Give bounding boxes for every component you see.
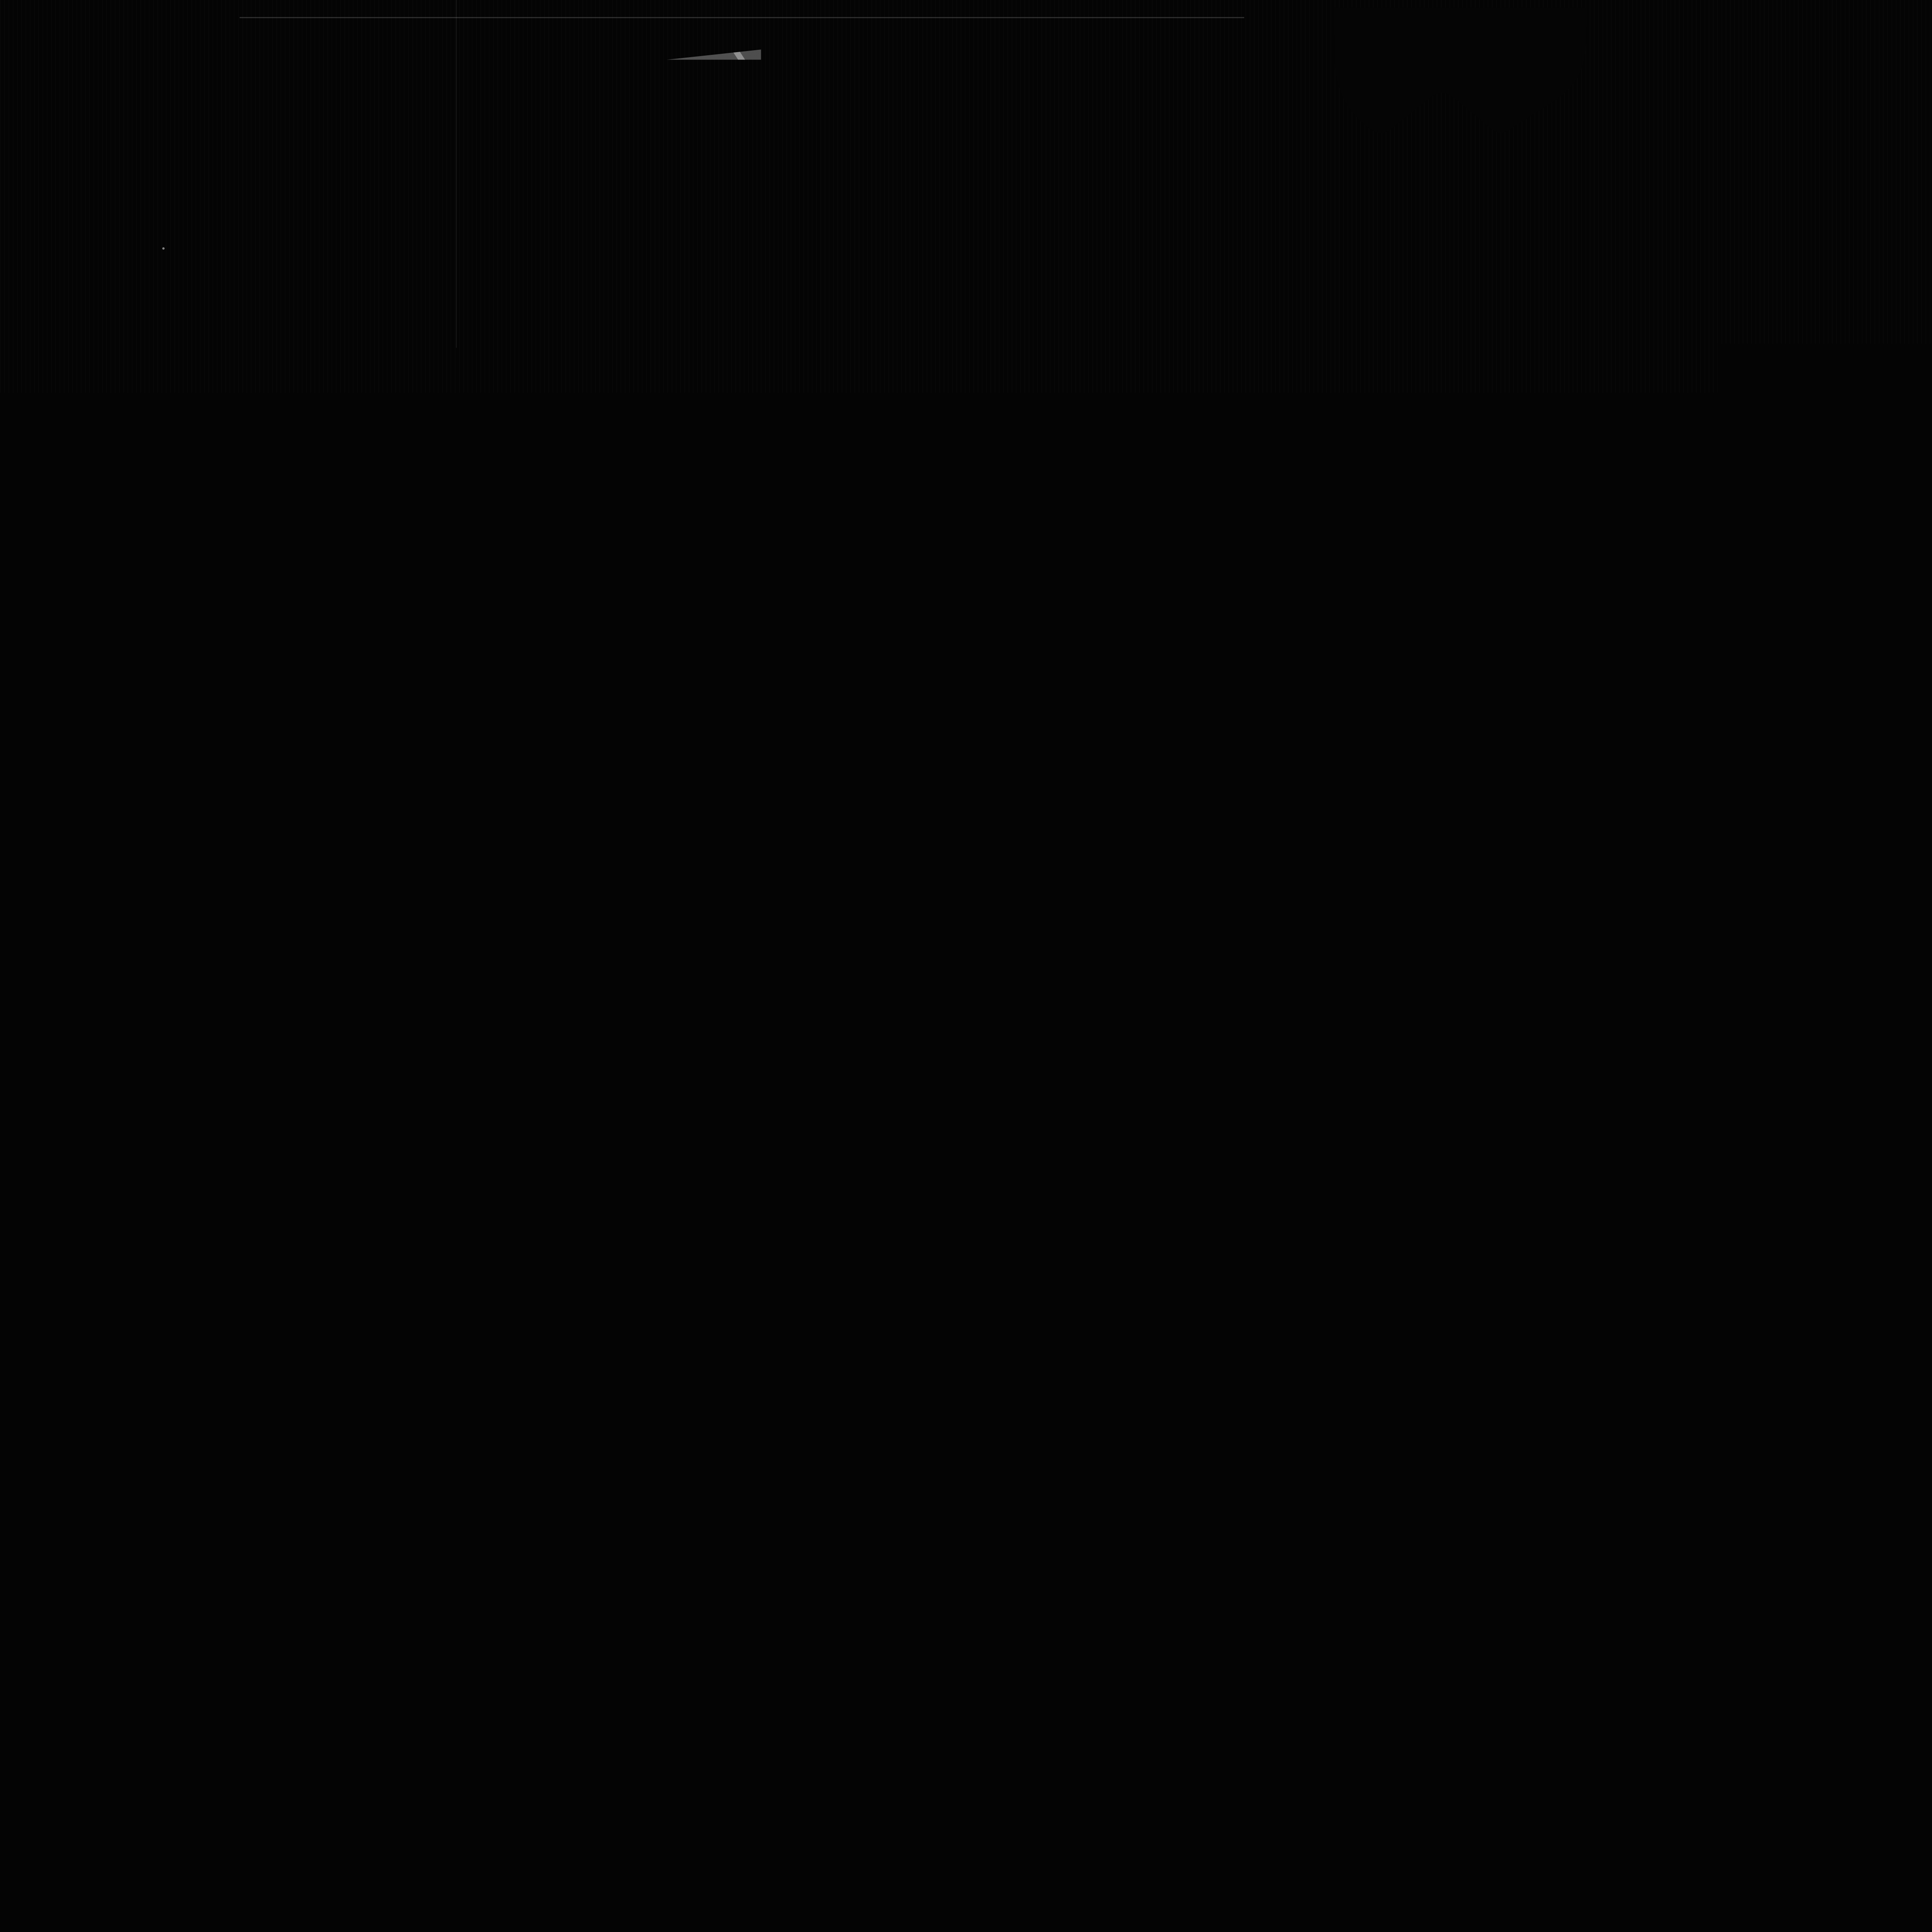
svg-text:20: 20 — [137, 1611, 155, 1628]
svg-text:6: 6 — [153, 920, 174, 931]
svg-text:1: 1 — [65, 897, 86, 907]
instrument-clock: 12 1 2 3 4 5 6 7 8 9 10 11 — [43, 850, 189, 1001]
annotation-date: 13.5.69 — [157, 464, 179, 537]
svg-text:2: 2 — [83, 879, 103, 890]
label-company-city: Hamburg — [78, 481, 92, 534]
gauge-aux-value: -0,15 — [160, 1624, 172, 1647]
svg-text:10: 10 — [125, 1702, 143, 1720]
annotation-city: BERLIN — [108, 446, 136, 545]
svg-text:10: 10 — [122, 1639, 140, 1656]
handwritten-area: BERLIN 2135 m 13.5.69 — [101, 439, 187, 558]
svg-text:12: 12 — [59, 915, 80, 935]
svg-text:9: 9 — [106, 968, 127, 978]
label-company-name: N.RÜPKE — [60, 469, 80, 546]
svg-text:7: 7 — [147, 944, 168, 954]
photo-content — [267, 4, 1932, 1932]
svg-text:4: 4 — [130, 879, 150, 889]
collimator-target: c=210,92 Nr 2016 — [44, 1180, 203, 1370]
handwritten-annotation: BERLIN 2135 m 13.5.69 — [103, 437, 185, 560]
gauge-formula: 1°=2,5×10⁻⁶A — [140, 1659, 160, 1756]
printed-label-frame: Vermessungsbüro N.RÜPKE Hamburg — [41, 451, 103, 560]
svg-text:11: 11 — [65, 939, 86, 959]
svg-text:3: 3 — [106, 873, 127, 884]
scanned-film-frame: 4 3 9 Vermessungsbüro N.RÜPKE Hamburg BE… — [0, 0, 1932, 1932]
printed-label-text: Vermessungsbüro N.RÜPKE Hamburg — [42, 456, 98, 558]
annotation-altitude: 2135 m — [134, 457, 159, 539]
svg-text:5: 5 — [147, 897, 168, 907]
tilt-gauge: 20 10 0 10 20 1°=2,5×10⁻⁶A -0,15 — [62, 1578, 185, 1787]
aerial-photograph: 4 3 9 — [0, 0, 1932, 1932]
survey-label-card: Vermessungsbüro N.RÜPKE Hamburg BERLIN 2… — [36, 434, 191, 563]
fiducial-dot — [288, 1161, 301, 1173]
svg-text:8: 8 — [130, 961, 150, 972]
